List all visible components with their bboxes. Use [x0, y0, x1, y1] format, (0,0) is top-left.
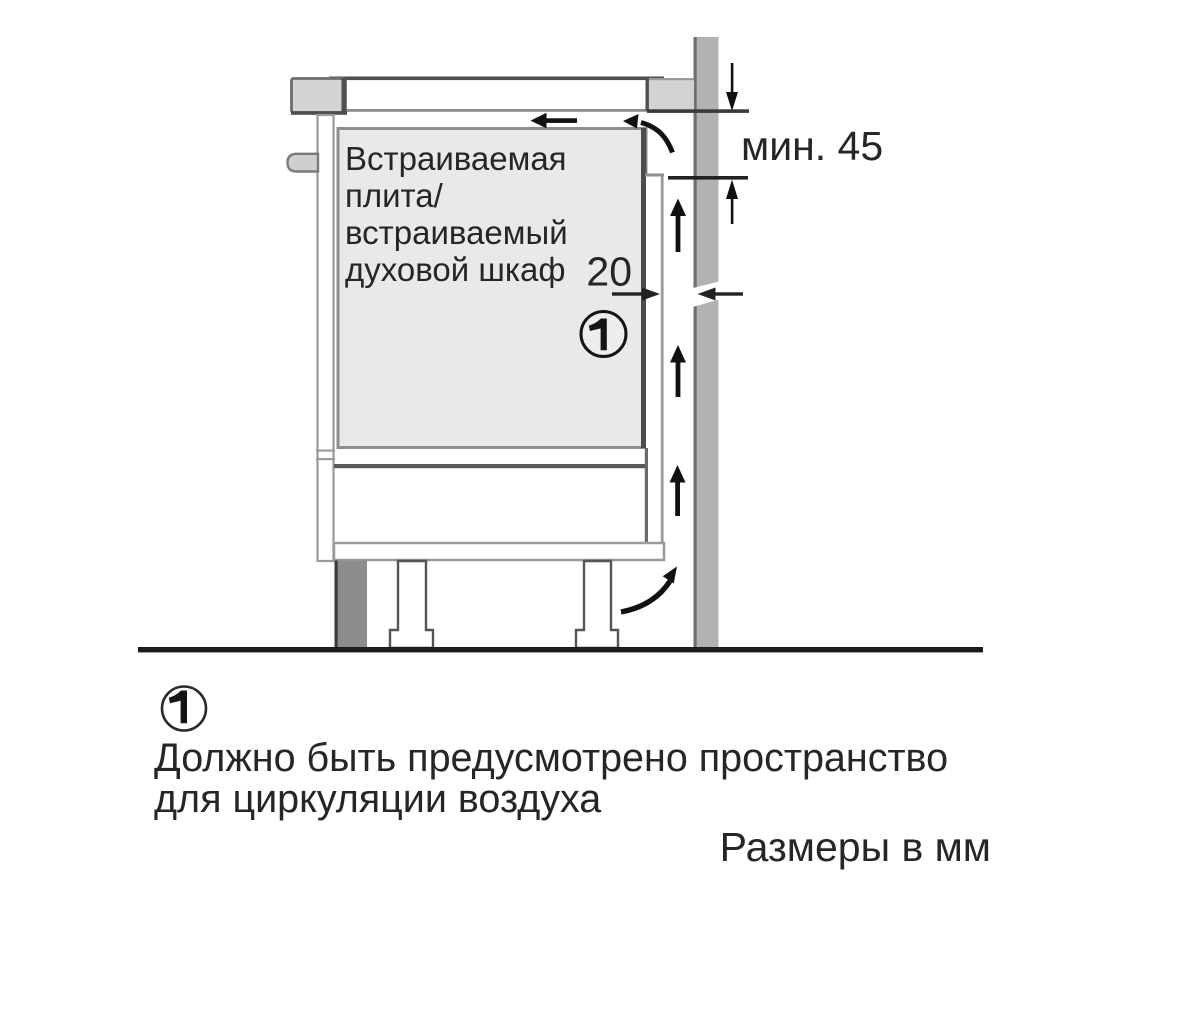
svg-text:мин. 45: мин. 45	[741, 123, 883, 169]
svg-text:духовой шкаф: духовой шкаф	[345, 251, 566, 288]
svg-text:Должно быть предусмотрено прос: Должно быть предусмотрено пространство	[154, 736, 948, 780]
svg-text:встраиваемый: встраиваемый	[345, 214, 568, 251]
svg-text:Встраиваемая: Встраиваемая	[345, 140, 567, 177]
svg-text:для циркуляции воздуха: для циркуляции воздуха	[154, 777, 601, 821]
svg-text:20: 20	[586, 249, 632, 295]
svg-text:Размеры в мм: Размеры в мм	[720, 824, 991, 870]
svg-text:плита/: плита/	[345, 177, 444, 214]
